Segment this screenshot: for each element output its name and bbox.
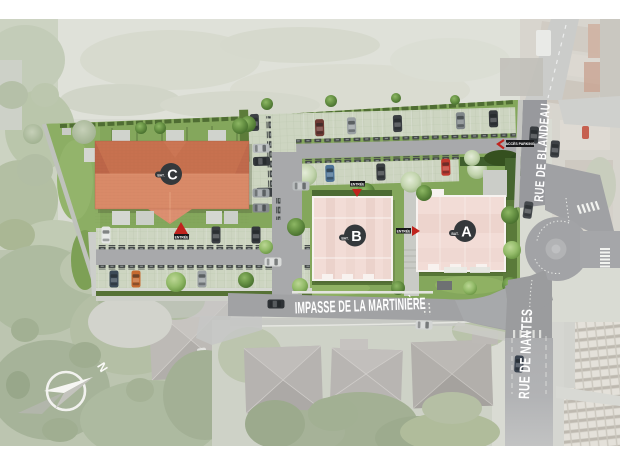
svg-text:B: B bbox=[351, 229, 361, 245]
svg-text:BAT.: BAT. bbox=[341, 236, 349, 240]
svg-text:BAT.: BAT. bbox=[451, 232, 459, 236]
svg-text:ENTRÉE: ENTRÉE bbox=[351, 181, 365, 186]
svg-text:C: C bbox=[167, 167, 178, 183]
svg-text:BAT.: BAT. bbox=[157, 173, 165, 177]
svg-text:ACCÈS PARKING: ACCÈS PARKING bbox=[505, 141, 534, 146]
svg-text:ENTRÉE: ENTRÉE bbox=[175, 234, 189, 239]
svg-text:RUE DE NANTES: RUE DE NANTES bbox=[515, 308, 536, 399]
svg-text:A: A bbox=[461, 224, 472, 240]
svg-text:ENTRÉE: ENTRÉE bbox=[397, 228, 411, 233]
